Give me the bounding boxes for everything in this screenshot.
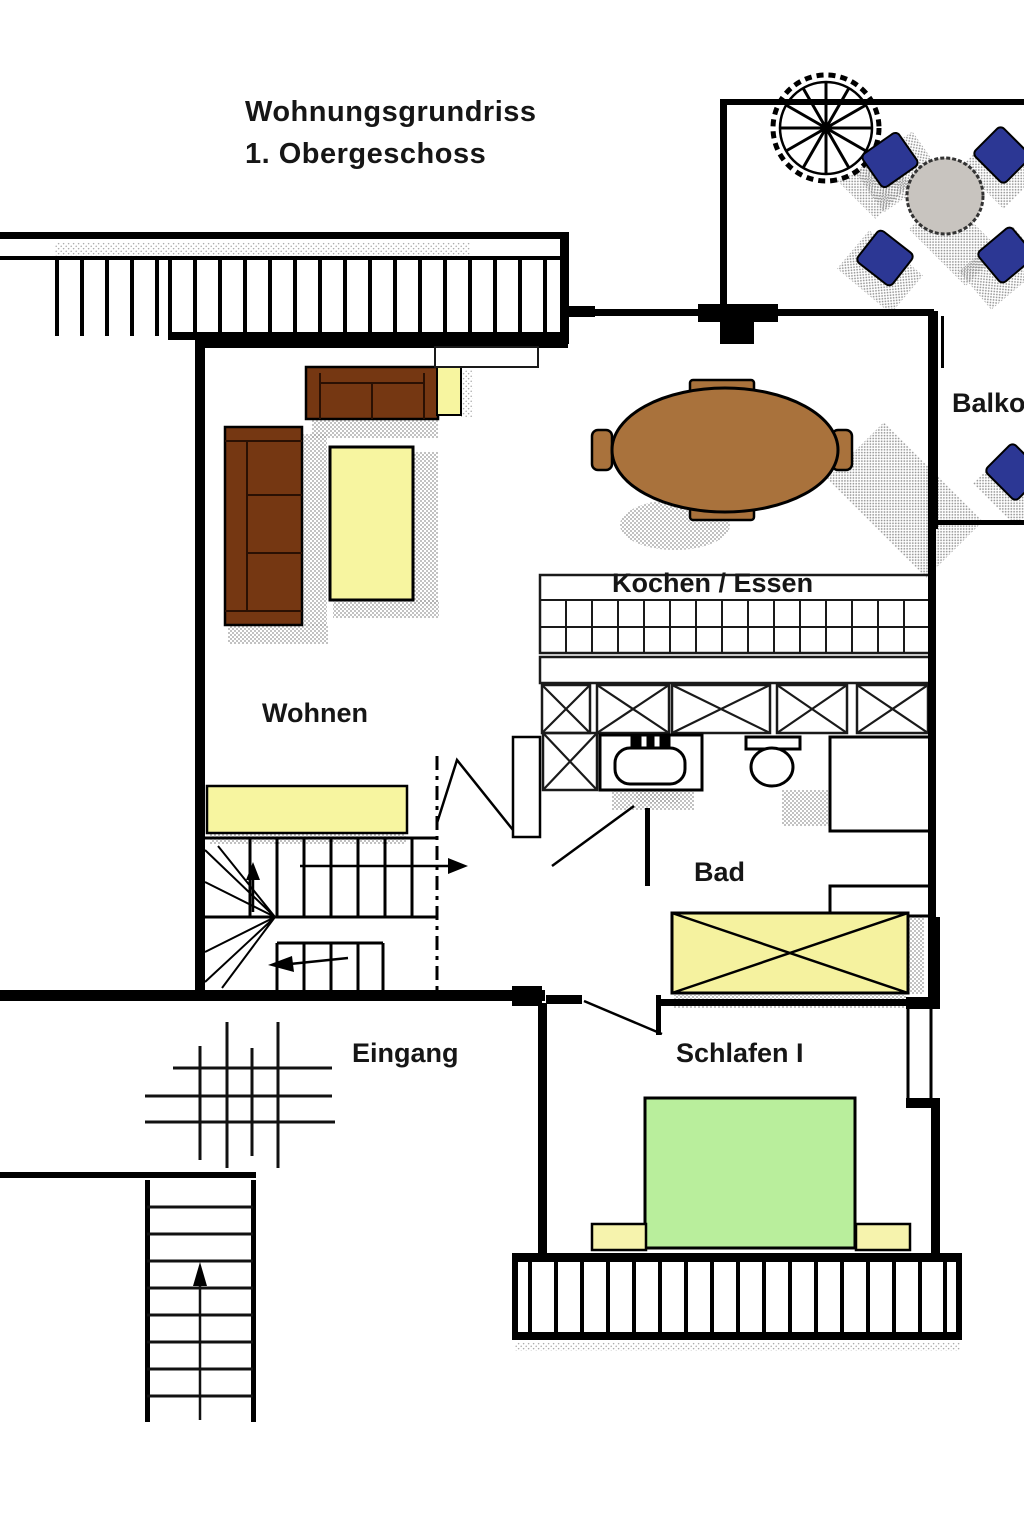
bed [645,1098,855,1248]
kitchen-window-marker [698,304,778,322]
terrace-table [907,158,983,234]
sofa-b-shadow-below [228,624,328,644]
entrance-outdoor [145,1022,335,1420]
dining-chair-left [592,430,612,470]
coffee-table [330,447,413,600]
balcony-divider-rail [938,520,1024,525]
railing-planter-box [435,347,538,367]
bedroom-north-wall-right [661,999,933,1006]
sink-tap-left [631,737,641,746]
terrace-west-wall [720,99,727,313]
railing-posts-free [57,260,157,336]
coffee-table-shadow-right [414,452,438,604]
terrace-north-wall [722,99,1024,105]
sofa-a-shadow [312,420,438,438]
bedroom-south-wall [512,1253,962,1262]
label-entrance: Eingang [352,1038,459,1068]
entry-south-wall [0,1172,256,1178]
nightstand-left [592,1224,646,1250]
plan-title-line2: 1. Obergeschoss [245,138,486,170]
balcony-door-jamb [941,316,944,368]
sink-basin [615,748,685,784]
trellis-horizontal-lines [145,1068,335,1122]
stair-arrow-down-stem [290,958,348,964]
stair-upper-treads [250,838,412,917]
balcony-rail-left [512,1253,518,1340]
dining-table [612,388,838,512]
bath-door-leaf [552,806,634,866]
kitchen-counter-grid-lines [540,600,930,653]
south-wall-entry [0,990,545,1001]
balcony-rail-posts [530,1261,945,1332]
cabinet-x [857,685,928,733]
outdoor-stair-rail-left [145,1180,150,1422]
toilet-shadow [782,790,830,826]
kitchen-worktop [540,657,930,683]
east-wall-upper [928,311,938,503]
bedroom-door-stub [656,995,661,1035]
side-table [437,367,461,415]
label-kitchen: Kochen / Essen [612,568,813,598]
label-living-room: Wohnen [262,698,368,728]
floorplan-page: Wohnungsgrundriss 1. Obergeschoss Wohnen… [0,0,1024,1536]
kitchen-chimney-marker [720,322,754,344]
bedroom-west-wall [538,1003,547,1257]
bedroom-north-wall-left [546,995,582,1004]
east-wall-joint [928,503,938,529]
entry-door-swing [437,760,513,830]
bath-partition [645,808,650,886]
floorplan-drawing: Wohnungsgrundriss 1. Obergeschoss Wohnen… [0,0,1024,1536]
plan-title-line1: Wohnungsgrundriss [245,96,537,128]
coffee-table-shadow-below [333,600,439,618]
nightstand-right [856,1224,910,1250]
label-bedroom: Schlafen I [676,1038,804,1068]
dining-furniture [592,380,852,520]
sofa-three-seater [225,427,302,625]
cabinet-x [542,685,590,733]
railing-end-cap [560,232,569,344]
shower [830,737,930,831]
wall-tab [512,986,542,1006]
sofa-b-shadow-right [303,434,327,626]
stair-arrow-down-head [268,956,294,972]
sink-tap-right [660,737,670,746]
bedroom-door-leaf [584,1001,662,1034]
cabinet-x [543,733,597,790]
railing-second-rail [0,256,568,260]
balcony-rail-shadow [515,1342,960,1351]
toilet-bowl [751,748,793,786]
railing-top-rail [0,232,568,239]
east-wall-mid [928,527,936,917]
outdoor-stair-rail-right [251,1180,256,1422]
stair-arrow-up-head [246,862,260,880]
cabinet-x [597,685,669,733]
outdoor-stair-arrow-head [193,1262,207,1286]
east-wall-bedroom [931,1108,940,1258]
hall-cabinet [513,737,540,837]
east-wall-bath [928,917,940,997]
balcony-rail-bottom [512,1332,962,1340]
bedroom-window [908,1009,931,1098]
railing-posts [170,260,545,334]
label-balcony: Balkon [952,388,1024,418]
cabinet-x [672,685,770,733]
bedroom-window-cap-bottom [906,1098,940,1108]
sink-tap-spout [647,735,654,749]
kitchen-wall-step [561,306,595,317]
label-bath: Bad [694,857,745,887]
side-table-shadow [461,370,473,418]
bedroom-furniture [592,913,910,1250]
stair-arrow-right-head [448,858,468,874]
living-west-wall [195,338,205,995]
railing-shadow [55,242,470,256]
balcony-rail-right [956,1253,962,1340]
sideboard [207,786,407,833]
bathroom-fixtures [513,735,932,916]
cabinet-x [777,685,847,733]
stair-flight-edges [200,838,437,917]
wardrobe-shadow-right [908,916,924,994]
